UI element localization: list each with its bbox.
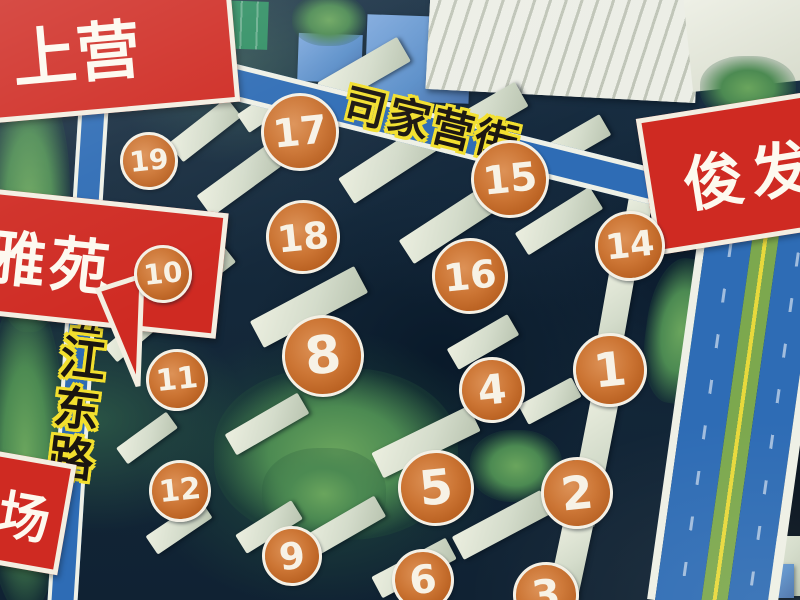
building-marker-15: 15 [467,136,553,222]
building-marker-19: 19 [117,129,181,193]
building-marker-4: 4 [456,354,529,427]
building-marker-6: 6 [389,546,457,600]
markers-layer: 19171514101816811411252963 [0,0,800,600]
map-photo: 司家营街 五 江东路 上营 俊发 雅苑 场 191715141018168114… [0,0,800,600]
building-marker-18: 18 [262,196,343,277]
building-marker-12: 12 [146,457,214,525]
building-marker-11: 11 [143,346,211,414]
building-marker-8: 8 [278,311,368,401]
building-marker-3: 3 [510,559,583,600]
building-marker-14: 14 [592,208,669,285]
building-marker-2: 2 [537,453,616,532]
building-marker-1: 1 [569,329,650,410]
building-marker-16: 16 [428,234,512,318]
building-marker-9: 9 [259,523,325,589]
building-marker-5: 5 [394,446,478,530]
building-marker-10: 10 [131,242,195,306]
building-marker-17: 17 [257,89,343,175]
